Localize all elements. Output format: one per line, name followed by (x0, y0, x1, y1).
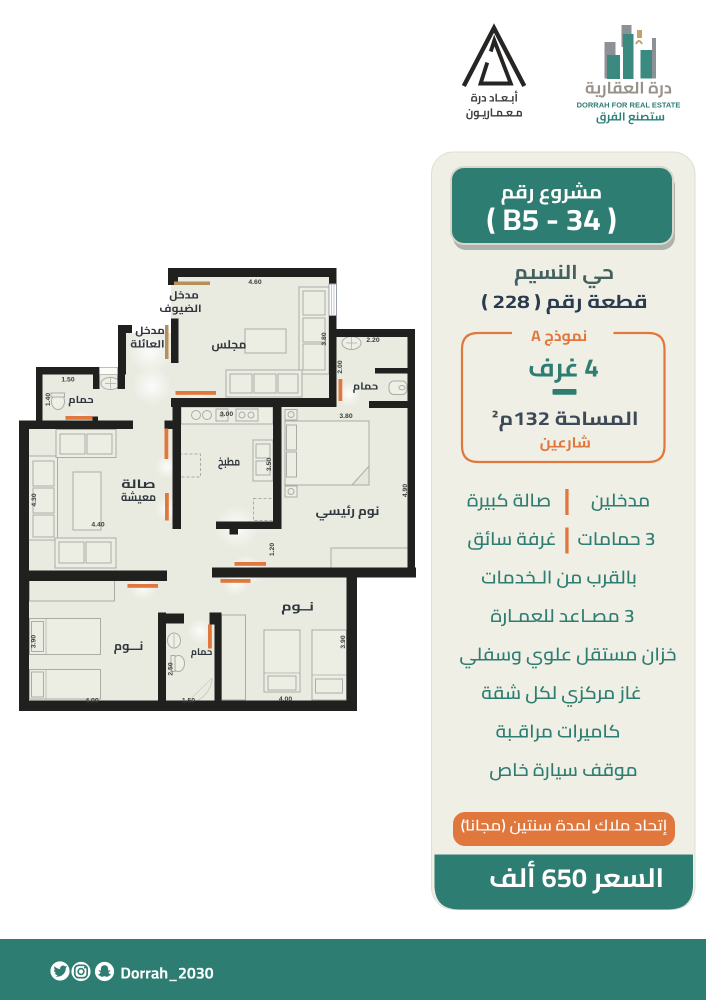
svg-text:4.30: 4.30 (31, 493, 38, 506)
svg-text:4.00: 4.00 (279, 696, 292, 703)
svg-text:3.00: 3.00 (220, 411, 233, 418)
svg-text:4.40: 4.40 (91, 521, 104, 528)
svg-text:4.00: 4.00 (85, 697, 98, 704)
svg-text:1.50: 1.50 (61, 376, 74, 383)
svg-text:1.20: 1.20 (269, 543, 276, 556)
svg-text:4.60: 4.60 (248, 279, 261, 286)
svg-text:2.50: 2.50 (167, 662, 174, 675)
svg-text:2.00: 2.00 (337, 360, 344, 373)
svg-text:DORRAH FOR REAL ESTATE: DORRAH FOR REAL ESTATE (577, 101, 681, 110)
svg-text:3.80: 3.80 (321, 332, 328, 345)
svg-text:2.20: 2.20 (366, 337, 379, 344)
svg-text:3.50: 3.50 (266, 458, 273, 471)
svg-text:3.90: 3.90 (30, 635, 37, 648)
svg-text:1.50: 1.50 (182, 697, 195, 704)
svg-text:3.90: 3.90 (340, 635, 347, 648)
svg-text:1.40: 1.40 (45, 393, 52, 406)
svg-text:3.80: 3.80 (339, 413, 352, 420)
svg-text:4.90: 4.90 (402, 484, 409, 497)
